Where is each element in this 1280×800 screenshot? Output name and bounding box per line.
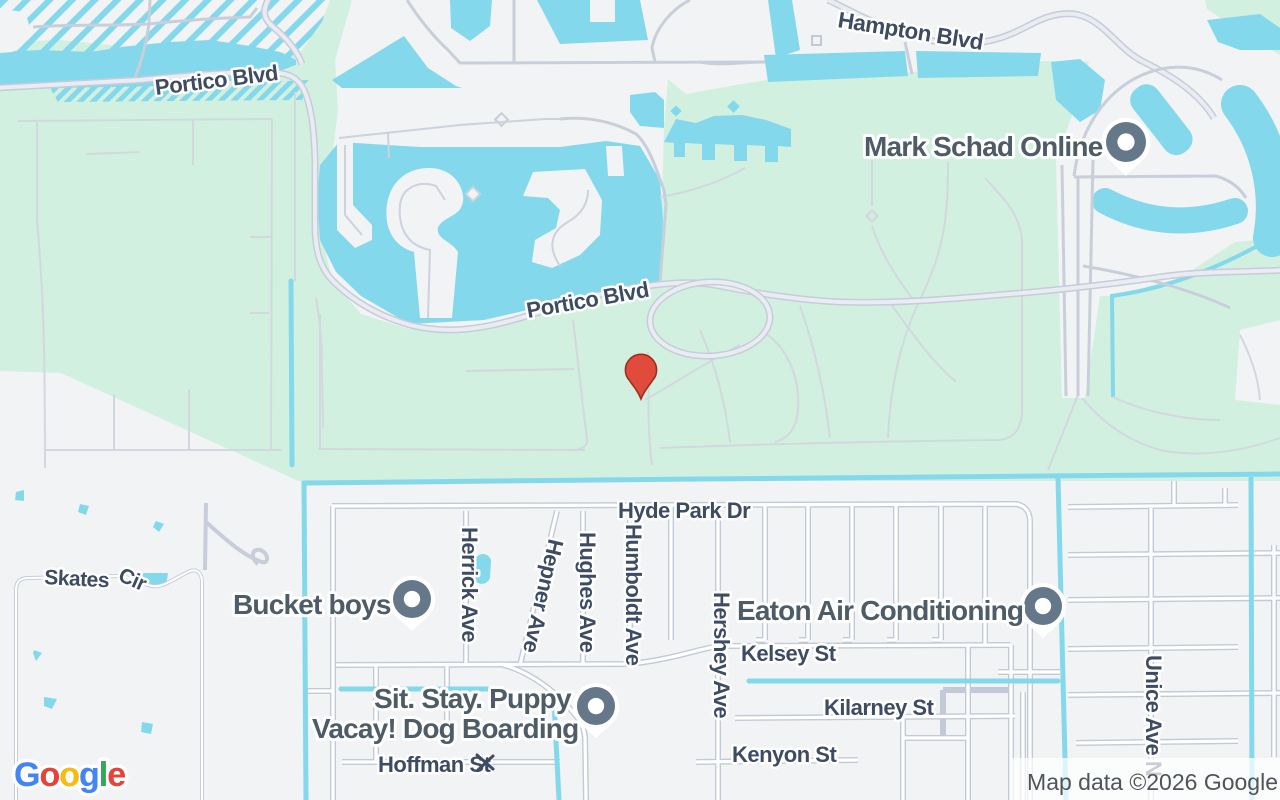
svg-text:Mark Schad Online: Mark Schad Online [864, 131, 1103, 162]
svg-text:Google: Google [14, 756, 125, 794]
svg-text:Hyde Park Dr: Hyde Park Dr [618, 498, 751, 523]
svg-text:Kenyon St: Kenyon St [732, 742, 837, 767]
svg-text:Hoffman St: Hoffman St [378, 752, 492, 777]
svg-text:Skates: Skates [44, 566, 110, 592]
svg-text:Kilarney St: Kilarney St [824, 695, 935, 720]
svg-text:Bucket boys: Bucket boys [233, 589, 391, 620]
svg-text:Hershey Ave: Hershey Ave [709, 592, 734, 718]
svg-text:Map data ©2026 Google: Map data ©2026 Google [1027, 769, 1278, 795]
svg-text:Herrick Ave: Herrick Ave [457, 527, 482, 642]
svg-text:Vacay! Dog Boarding: Vacay! Dog Boarding [312, 713, 578, 744]
svg-text:Hughes Ave: Hughes Ave [575, 532, 600, 653]
svg-text:Eaton Air Conditioning: Eaton Air Conditioning [737, 595, 1023, 626]
svg-text:Sit. Stay. Puppy: Sit. Stay. Puppy [374, 683, 572, 714]
svg-text:Humboldt Ave: Humboldt Ave [621, 524, 646, 666]
svg-text:Kelsey St: Kelsey St [741, 641, 837, 666]
